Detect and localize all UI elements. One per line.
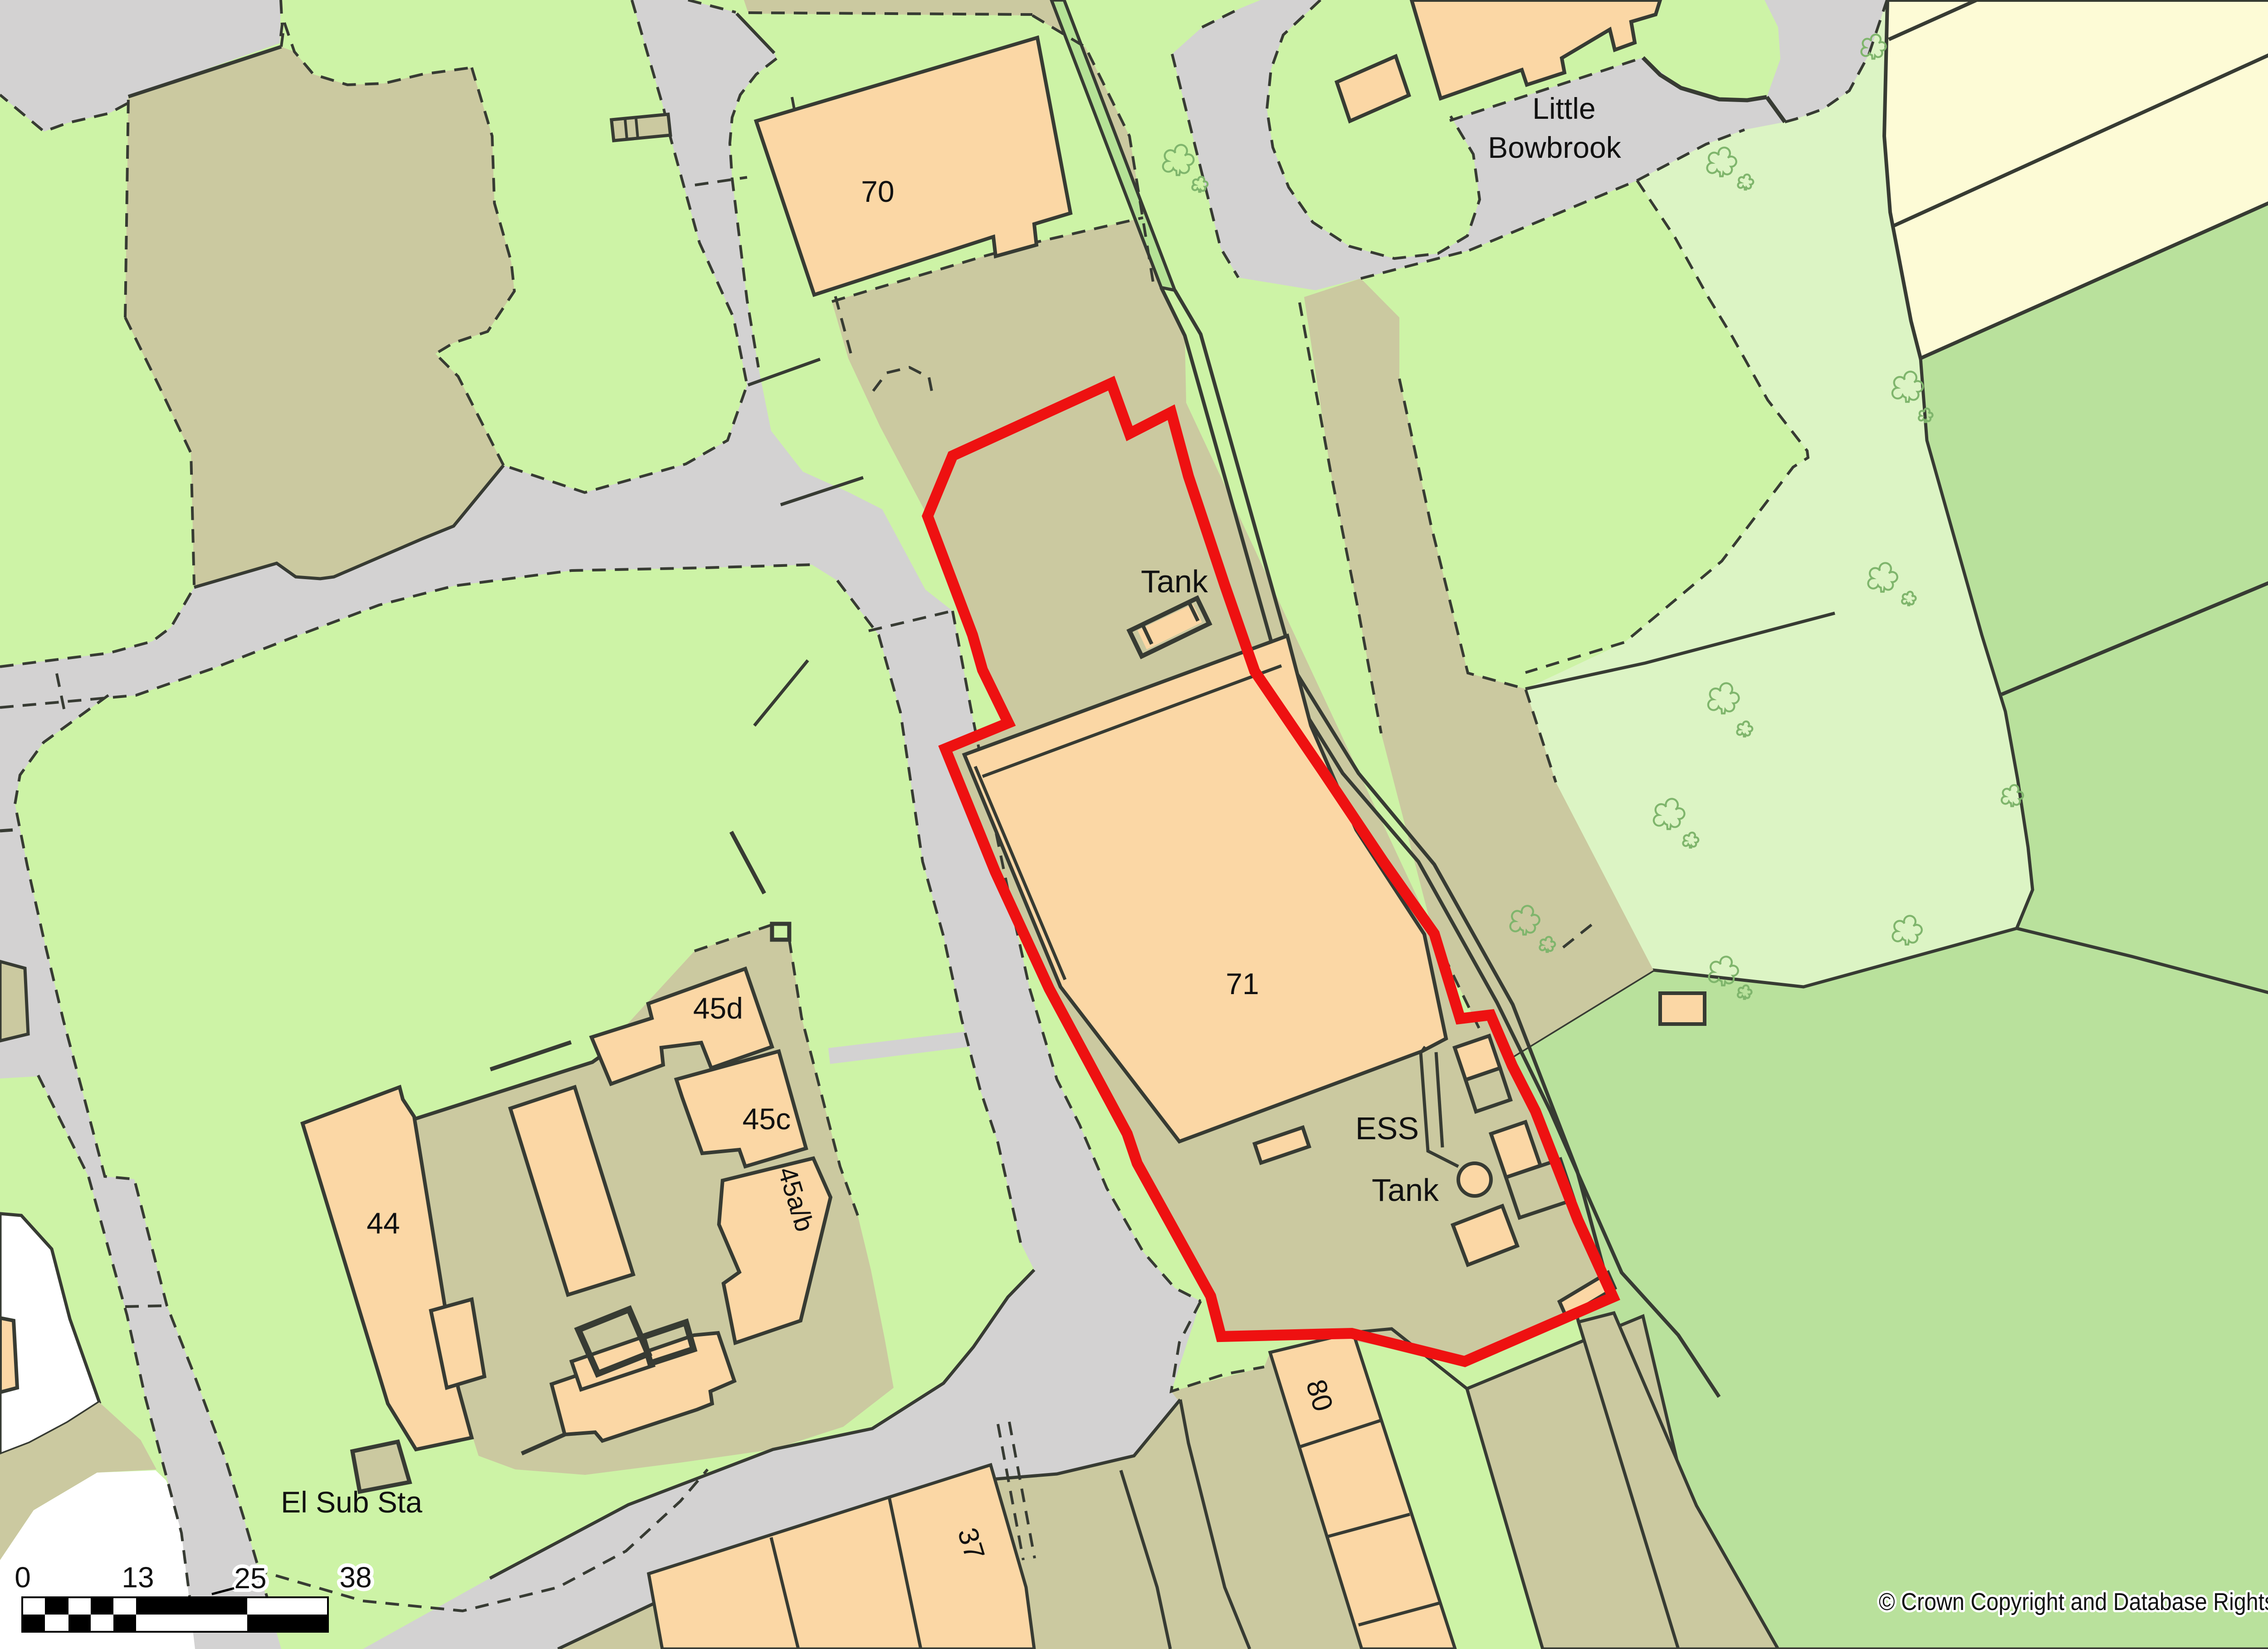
svg-text:45d: 45d <box>693 991 743 1025</box>
svg-text:Little: Little <box>1532 92 1595 125</box>
svg-text:45c: 45c <box>743 1102 791 1136</box>
svg-text:25: 25 <box>234 1562 266 1595</box>
svg-text:Bowbrook: Bowbrook <box>1488 131 1621 164</box>
svg-text:© Crown Copyright and Database: © Crown Copyright and Database Rights 20… <box>1879 1588 2268 1615</box>
svg-text:38: 38 <box>339 1561 371 1594</box>
svg-text:0: 0 <box>15 1561 31 1594</box>
svg-text:Tank: Tank <box>1372 1172 1439 1208</box>
svg-text:ESS: ESS <box>1355 1111 1419 1146</box>
svg-text:44: 44 <box>367 1206 400 1240</box>
svg-text:13: 13 <box>122 1561 154 1594</box>
svg-text:El Sub Sta: El Sub Sta <box>281 1485 422 1519</box>
svg-text:Tank: Tank <box>1141 564 1208 599</box>
svg-text:70: 70 <box>861 175 894 208</box>
svg-text:71: 71 <box>1226 967 1259 1000</box>
